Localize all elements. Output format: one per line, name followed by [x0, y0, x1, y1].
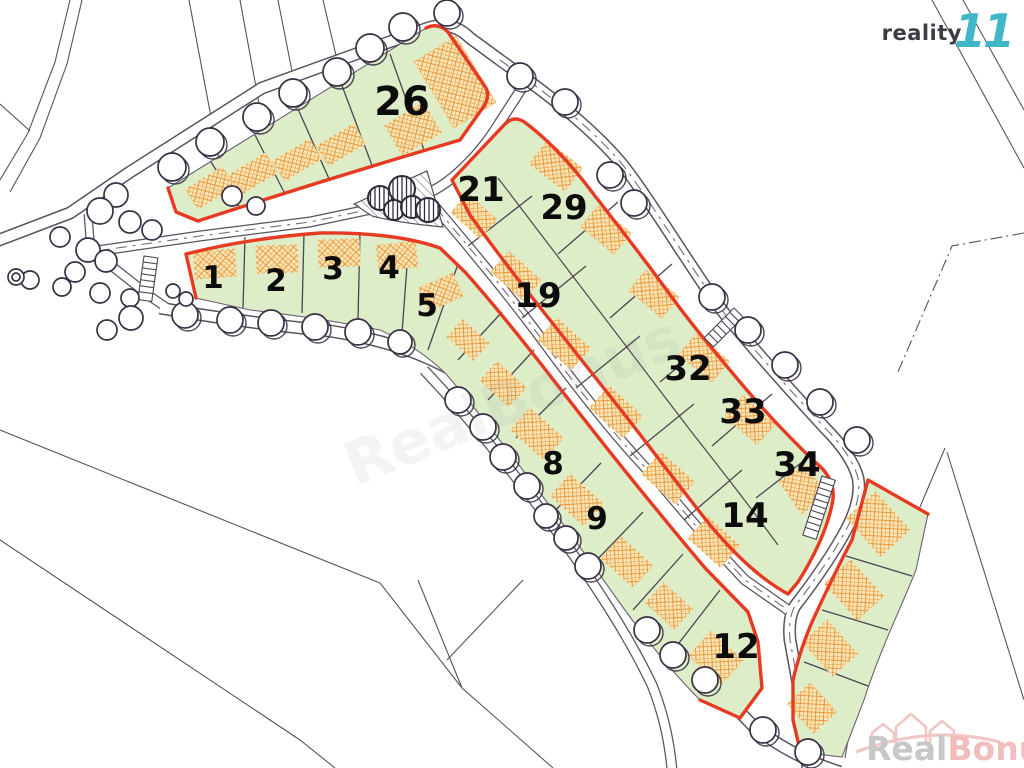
tree-icon: [217, 307, 243, 333]
watermark-part2: Bonus: [947, 729, 1024, 768]
plot-label: 19: [514, 276, 561, 316]
tree-icon: [507, 63, 533, 89]
plot-label: 33: [719, 392, 766, 432]
tree-icon: [552, 89, 578, 115]
agency-logo-text: reality: [882, 21, 962, 45]
tree-icon: [258, 310, 284, 336]
plot-label: 2: [265, 263, 287, 299]
agency-logo: reality 11: [882, 4, 1012, 58]
tree-icon: [90, 283, 110, 303]
tree-icon: [621, 190, 647, 216]
tree-icon: [660, 642, 686, 668]
tree-icon: [490, 444, 516, 470]
tree-icon: [179, 292, 193, 306]
tree-icon: [65, 262, 85, 282]
tree-icon: [699, 284, 725, 310]
tree-icon: [196, 128, 224, 156]
tree-icon: [87, 198, 113, 224]
traffic-island: [354, 171, 443, 227]
tree-icon: [388, 330, 412, 354]
plot-label: 5: [416, 288, 438, 324]
plot-label: 14: [721, 496, 768, 536]
tree-icon: [95, 250, 117, 272]
plot-label: 9: [586, 501, 608, 537]
tree-icon: [795, 739, 821, 765]
plot-label: 34: [773, 445, 820, 485]
tree-icon: [97, 320, 117, 340]
tree-icon: [597, 162, 623, 188]
plot-label: 21: [457, 170, 504, 210]
tree-icon: [302, 314, 328, 340]
tree-icon: [158, 153, 186, 181]
tree-icon: [514, 473, 540, 499]
plot-label: 26: [374, 79, 430, 125]
agency-logo-number: 11: [954, 4, 1012, 58]
tree-icon: [247, 197, 265, 215]
tree-icon: [554, 526, 578, 550]
tree-icon: [692, 667, 718, 693]
tree-icon: [575, 553, 601, 579]
shrub-icon: [416, 198, 440, 222]
tree-icon: [356, 34, 384, 62]
tree-icon: [222, 186, 242, 206]
tree-icon: [844, 427, 870, 453]
tree-icon: [434, 0, 460, 26]
tree-icon: [142, 220, 162, 240]
tree-icon: [807, 389, 833, 415]
tree-icon: [345, 319, 371, 345]
tree-icon: [166, 284, 180, 298]
site-plan-map: 26 21 29 1 2 3 4 5 19 8 9 32 33 34 14 12…: [0, 0, 1024, 768]
well-icon: [12, 273, 20, 281]
svg-text:RealBonus.cz: RealBonus.cz: [866, 729, 1024, 768]
plot-label: 12: [712, 627, 759, 667]
plot-label: 1: [202, 260, 224, 296]
site-plan-image: 26 21 29 1 2 3 4 5 19 8 9 32 33 34 14 12…: [0, 0, 1024, 768]
tree-icon: [53, 278, 71, 296]
tree-icon: [121, 289, 139, 307]
tree-icon: [323, 58, 351, 86]
tree-icon: [119, 211, 141, 233]
plot-label: 4: [378, 250, 400, 286]
tree-icon: [50, 227, 70, 247]
plot-label: 8: [542, 446, 564, 482]
tree-icon: [772, 352, 798, 378]
watermark-part1: Real: [866, 729, 947, 768]
tree-icon: [634, 617, 660, 643]
plot-label: 29: [540, 188, 587, 228]
tree-icon: [119, 306, 143, 330]
tree-icon: [735, 317, 761, 343]
tree-icon: [243, 103, 271, 131]
tree-icon: [534, 504, 558, 528]
corner-watermark: RealBonus.cz: [856, 714, 1024, 768]
tree-icon: [750, 717, 776, 743]
plot-label: 3: [322, 251, 344, 287]
tree-icon: [279, 79, 307, 107]
tree-icon: [389, 13, 417, 41]
